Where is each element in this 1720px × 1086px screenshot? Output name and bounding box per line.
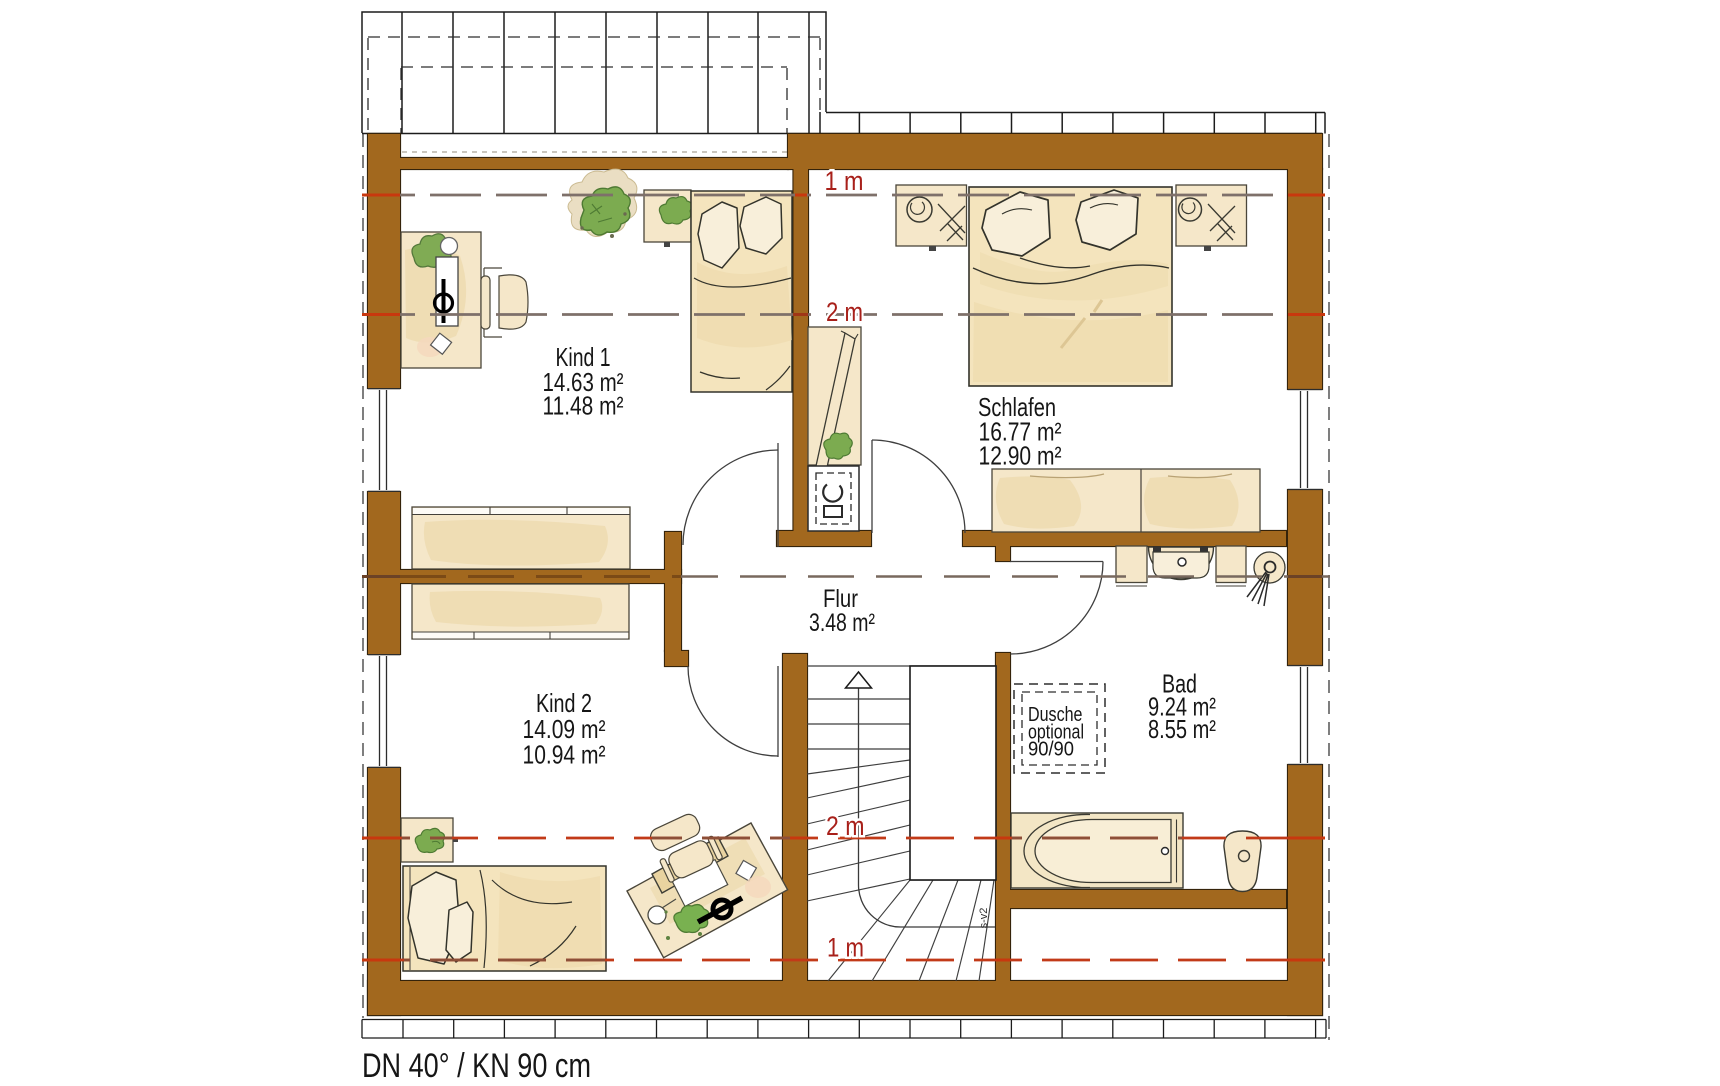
svg-text:8.55 m²: 8.55 m² <box>1148 714 1216 744</box>
svg-text:2 m: 2 m <box>826 297 863 327</box>
svg-text:11.48 m²: 11.48 m² <box>543 391 624 421</box>
svg-text:DN 40° / KN 90 cm: DN 40° / KN 90 cm <box>362 1047 591 1085</box>
svg-text:12.90 m²: 12.90 m² <box>979 441 1062 471</box>
svg-text:s-v2: s-v2 <box>978 908 990 929</box>
svg-text:1 m: 1 m <box>825 166 864 196</box>
svg-text:3.48 m²: 3.48 m² <box>809 609 875 637</box>
svg-text:90/90: 90/90 <box>1028 739 1074 761</box>
svg-text:10.94 m²: 10.94 m² <box>523 740 606 770</box>
svg-text:2 m: 2 m <box>826 811 865 841</box>
svg-text:1 m: 1 m <box>827 933 864 963</box>
